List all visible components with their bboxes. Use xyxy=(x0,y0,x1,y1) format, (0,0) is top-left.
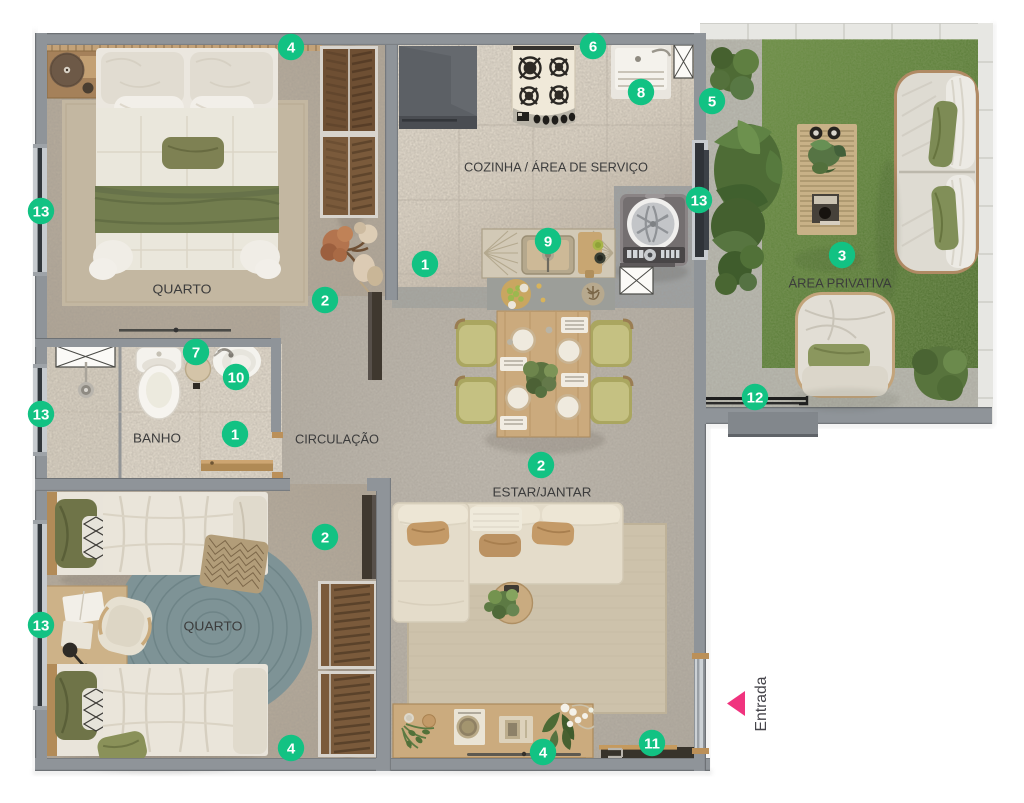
svg-text:13: 13 xyxy=(33,406,50,423)
svg-text:12: 12 xyxy=(747,389,764,406)
svg-text:8: 8 xyxy=(637,84,645,101)
svg-text:Entrada: Entrada xyxy=(753,676,770,731)
svg-text:ÁREA PRIVATIVA: ÁREA PRIVATIVA xyxy=(789,276,892,291)
svg-text:2: 2 xyxy=(321,529,329,546)
svg-text:6: 6 xyxy=(589,38,597,55)
svg-text:13: 13 xyxy=(33,617,50,634)
svg-text:11: 11 xyxy=(644,735,660,752)
svg-text:4: 4 xyxy=(539,744,548,761)
svg-text:13: 13 xyxy=(33,203,50,220)
svg-text:QUARTO: QUARTO xyxy=(153,282,212,297)
svg-text:9: 9 xyxy=(544,233,552,250)
svg-text:4: 4 xyxy=(287,39,296,56)
svg-text:QUARTO: QUARTO xyxy=(184,619,243,634)
svg-text:10: 10 xyxy=(228,369,245,386)
svg-text:CIRCULAÇÃO: CIRCULAÇÃO xyxy=(295,432,379,447)
svg-text:3: 3 xyxy=(838,247,846,264)
svg-text:7: 7 xyxy=(192,344,200,361)
svg-text:1: 1 xyxy=(231,426,239,443)
svg-text:2: 2 xyxy=(537,457,545,474)
svg-text:BANHO: BANHO xyxy=(133,431,181,446)
svg-text:13: 13 xyxy=(691,192,708,209)
svg-text:4: 4 xyxy=(287,740,296,757)
svg-text:1: 1 xyxy=(421,256,429,273)
svg-text:ESTAR/JANTAR: ESTAR/JANTAR xyxy=(493,485,592,500)
svg-text:5: 5 xyxy=(708,93,716,110)
svg-text:2: 2 xyxy=(321,292,329,309)
svg-text:COZINHA / ÁREA DE SERVIÇO: COZINHA / ÁREA DE SERVIÇO xyxy=(464,160,648,175)
